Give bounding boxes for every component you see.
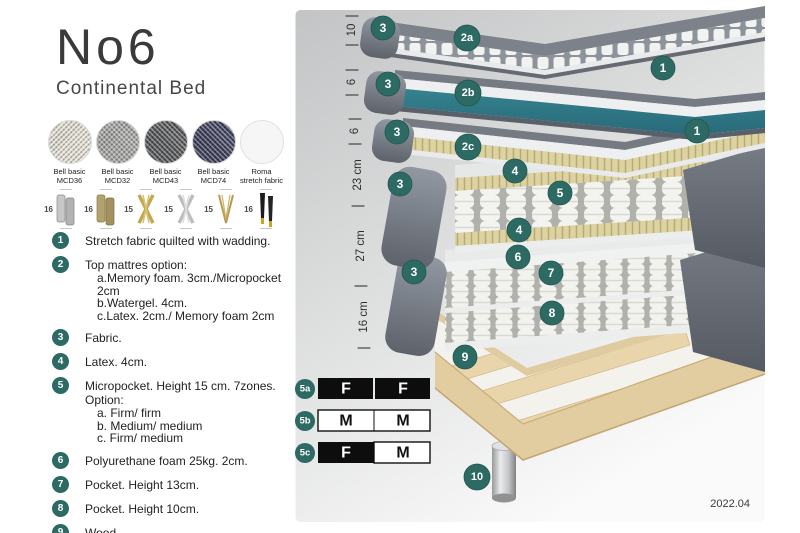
firmness-cell: M	[396, 413, 409, 430]
item-text: Pocket. Height 10cm.	[85, 500, 199, 517]
svg-text:8: 8	[549, 306, 556, 320]
fabric-name: Bell basic	[53, 167, 85, 176]
item-subtext: a. Firm/ firm	[85, 407, 292, 420]
list-item: 7 Pocket. Height 13cm.	[52, 476, 292, 493]
leg-option: 15	[202, 189, 240, 229]
svg-text:4: 4	[516, 223, 523, 237]
leg-height: 16	[242, 205, 253, 214]
firmness-cell: F	[341, 381, 351, 398]
fabric-option: Bell basicMCD43	[143, 120, 188, 185]
callout: 7	[539, 261, 563, 285]
leg-height: 15	[122, 205, 133, 214]
fabric-swatches: Bell basicMCD36 Bell basicMCD32 Bell bas…	[47, 120, 284, 185]
leg-option: 16	[42, 189, 80, 229]
svg-text:1: 1	[660, 61, 667, 75]
leg-hairpin-icon	[214, 190, 238, 228]
leg-cylinder-brass-icon	[94, 190, 118, 228]
list-item: 6 Polyurethane foam 25kg. 2cm.	[52, 452, 292, 469]
callout: 3	[402, 260, 426, 284]
callout: 3	[371, 16, 395, 40]
item-number-badge: 9	[52, 524, 69, 533]
fabric-swatch-circle	[240, 120, 284, 164]
fabric-name: Bell basic	[101, 167, 133, 176]
item-number-badge: 2	[52, 256, 69, 273]
callout: 1	[685, 119, 709, 143]
callout: 6	[506, 245, 530, 269]
svg-text:2a: 2a	[461, 32, 474, 44]
leg-option: 15	[162, 189, 200, 229]
list-item: 1 Stretch fabric quilted with wadding.	[52, 232, 292, 249]
svg-text:9: 9	[462, 350, 469, 364]
leg-height: 16	[42, 205, 53, 214]
fabric-code: stretch fabric	[240, 176, 283, 185]
callout: 2a	[454, 25, 480, 51]
leg-cylinder-silver-icon	[54, 190, 78, 228]
svg-text:5: 5	[557, 186, 564, 200]
item-number-badge: 7	[52, 476, 69, 493]
svg-text:3: 3	[411, 265, 418, 279]
spec-list: 1 Stretch fabric quilted with wadding. 2…	[52, 232, 292, 533]
leg-height: 15	[202, 205, 213, 214]
callout: 4	[503, 159, 527, 183]
fabric-swatch-circle	[192, 120, 236, 164]
fabric-name: Roma	[251, 167, 271, 176]
svg-text:2c: 2c	[462, 141, 474, 153]
leg-option: 15	[122, 189, 160, 229]
fabric-name: Bell basic	[149, 167, 181, 176]
product-sheet: No6 Continental Bed Bell basicMCD36 Bell…	[0, 0, 800, 533]
bed-exploded-diagram: 10 6 6 23 cm 27 cm 16 cm	[295, 0, 765, 533]
callout: 3	[385, 120, 409, 144]
list-item: 8 Pocket. Height 10cm.	[52, 500, 292, 517]
list-item: 5 Micropocket. Height 15 cm. 7zones. Opt…	[52, 377, 292, 445]
fabric-name: Bell basic	[197, 167, 229, 176]
item-text: Fabric.	[85, 329, 122, 346]
item-number-badge: 4	[52, 353, 69, 370]
callout: 3	[388, 172, 412, 196]
svg-text:10: 10	[471, 471, 483, 483]
measure-label: 16 cm	[358, 301, 370, 332]
item-number-badge: 3	[52, 329, 69, 346]
svg-text:3: 3	[380, 21, 387, 35]
measure-label: 10	[346, 24, 358, 37]
item-text: Stretch fabric quilted with wadding.	[85, 232, 270, 249]
leg-cross-silver-icon	[174, 190, 198, 228]
page-subtitle: Continental Bed	[56, 78, 206, 100]
item-text: Latex. 4cm.	[85, 353, 147, 370]
item-number-badge: 1	[52, 232, 69, 249]
measure-label: 6	[346, 79, 358, 85]
callout: 1	[651, 56, 675, 80]
svg-text:4: 4	[512, 164, 519, 178]
firmness-cell: F	[341, 445, 351, 462]
firmness-row-label: 5b	[299, 416, 310, 427]
fabric-swatch-circle	[48, 120, 92, 164]
list-item: 3 Fabric.	[52, 329, 292, 346]
firmness-cell: F	[398, 381, 408, 398]
list-item: 4 Latex. 4cm.	[52, 353, 292, 370]
item-number-badge: 6	[52, 452, 69, 469]
leg-option: 16	[242, 189, 280, 229]
item-text: Micropocket. Height 15 cm. 7zones. Optio…	[85, 379, 276, 407]
list-item: 9 Wood.	[52, 524, 292, 533]
callout: 2b	[455, 80, 481, 106]
item-subtext: a.Memory foam. 3cm./Micropocket 2cm	[85, 272, 292, 297]
firmness-cell: M	[339, 413, 352, 430]
item-subtext: c.Latex. 2cm./ Memory foam 2cm	[85, 310, 292, 323]
callout: 9	[453, 345, 477, 369]
leg-height: 16	[82, 205, 93, 214]
fabric-option: Romastretch fabric	[239, 120, 284, 185]
svg-text:6: 6	[515, 250, 522, 264]
svg-text:3: 3	[385, 77, 392, 91]
page-title: No6	[56, 20, 206, 74]
item-subtext: b.Watergel. 4cm.	[85, 297, 292, 310]
item-text: Top mattres option:	[85, 258, 187, 272]
measure-label: 6	[349, 128, 361, 134]
item-number-badge: 8	[52, 500, 69, 517]
callout: 2c	[455, 134, 481, 160]
callout: 4	[507, 218, 531, 242]
fabric-option: Bell basicMCD74	[191, 120, 236, 185]
leg-options: 16 16 15 15	[42, 189, 280, 229]
svg-text:2b: 2b	[462, 87, 475, 99]
svg-text:7: 7	[548, 266, 555, 280]
leg-cross-gold-icon	[134, 190, 158, 228]
item-number-badge: 5	[52, 377, 69, 394]
callout: 8	[540, 301, 564, 325]
leg-option: 16	[82, 189, 120, 229]
callout: 5	[548, 181, 572, 205]
firmness-cell: M	[396, 445, 409, 462]
svg-text:3: 3	[394, 125, 401, 139]
item-text: Polyurethane foam 25kg. 2cm.	[85, 452, 248, 469]
fabric-code: MCD36	[57, 176, 82, 185]
brand-block: No6 Continental Bed	[56, 20, 206, 100]
fabric-option: Bell basicMCD32	[95, 120, 140, 185]
fabric-swatch-circle	[144, 120, 188, 164]
list-item: 2 Top mattres option: a.Memory foam. 3cm…	[52, 256, 292, 322]
fabric-code: MCD74	[201, 176, 226, 185]
fabric-option: Bell basicMCD36	[47, 120, 92, 185]
leg-tapered-black-icon	[254, 190, 278, 228]
fabric-swatch-circle	[96, 120, 140, 164]
fabric-code: MCD43	[153, 176, 178, 185]
svg-text:1: 1	[694, 124, 701, 138]
firmness-row-label: 5c	[300, 448, 311, 459]
fabric-code: MCD32	[105, 176, 130, 185]
version-label: 2022.04	[710, 498, 750, 510]
item-subtext: c. Firm/ medium	[85, 432, 292, 445]
leg-height: 15	[162, 205, 173, 214]
firmness-row-label: 5a	[300, 384, 311, 395]
measure-label: 27 cm	[355, 230, 367, 261]
item-text: Pocket. Height 13cm.	[85, 476, 199, 493]
callout: 3	[376, 72, 400, 96]
item-text: Wood.	[85, 524, 119, 533]
measure-label: 23 cm	[352, 159, 364, 190]
callout: 10	[464, 464, 490, 490]
svg-text:3: 3	[397, 177, 404, 191]
